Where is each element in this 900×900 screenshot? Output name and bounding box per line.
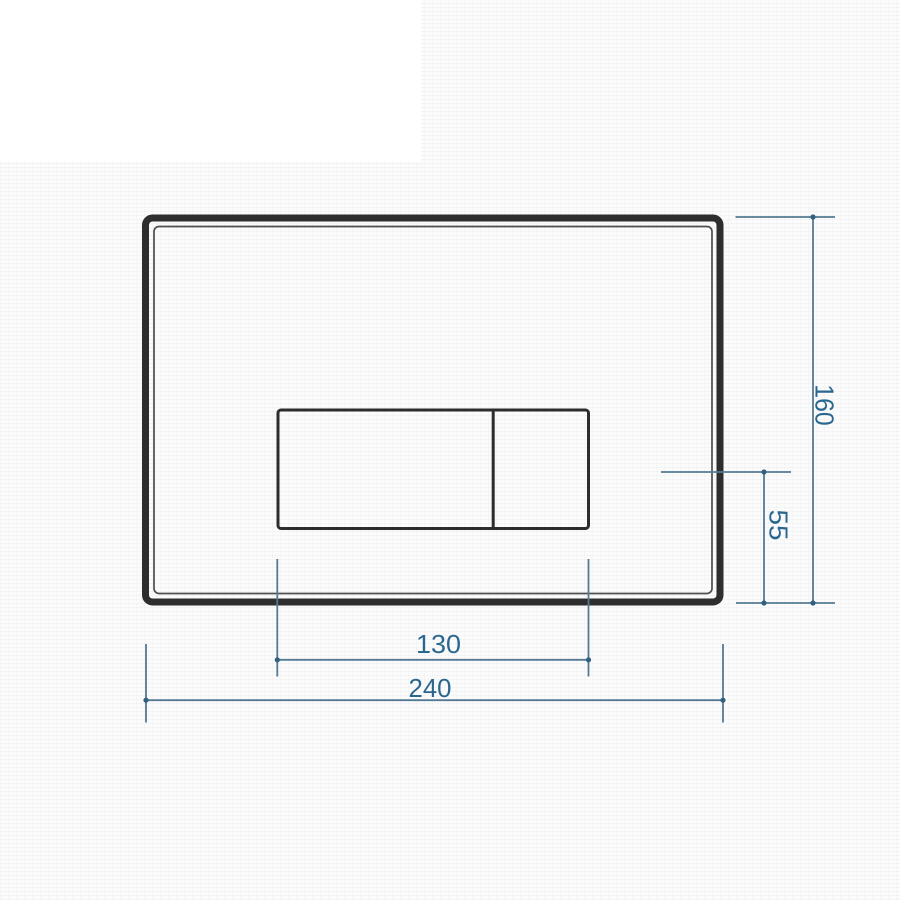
svg-text:240: 240 [409, 675, 452, 703]
svg-text:160: 160 [810, 384, 838, 426]
svg-text:130: 130 [416, 631, 461, 659]
svg-text:55: 55 [764, 510, 792, 541]
